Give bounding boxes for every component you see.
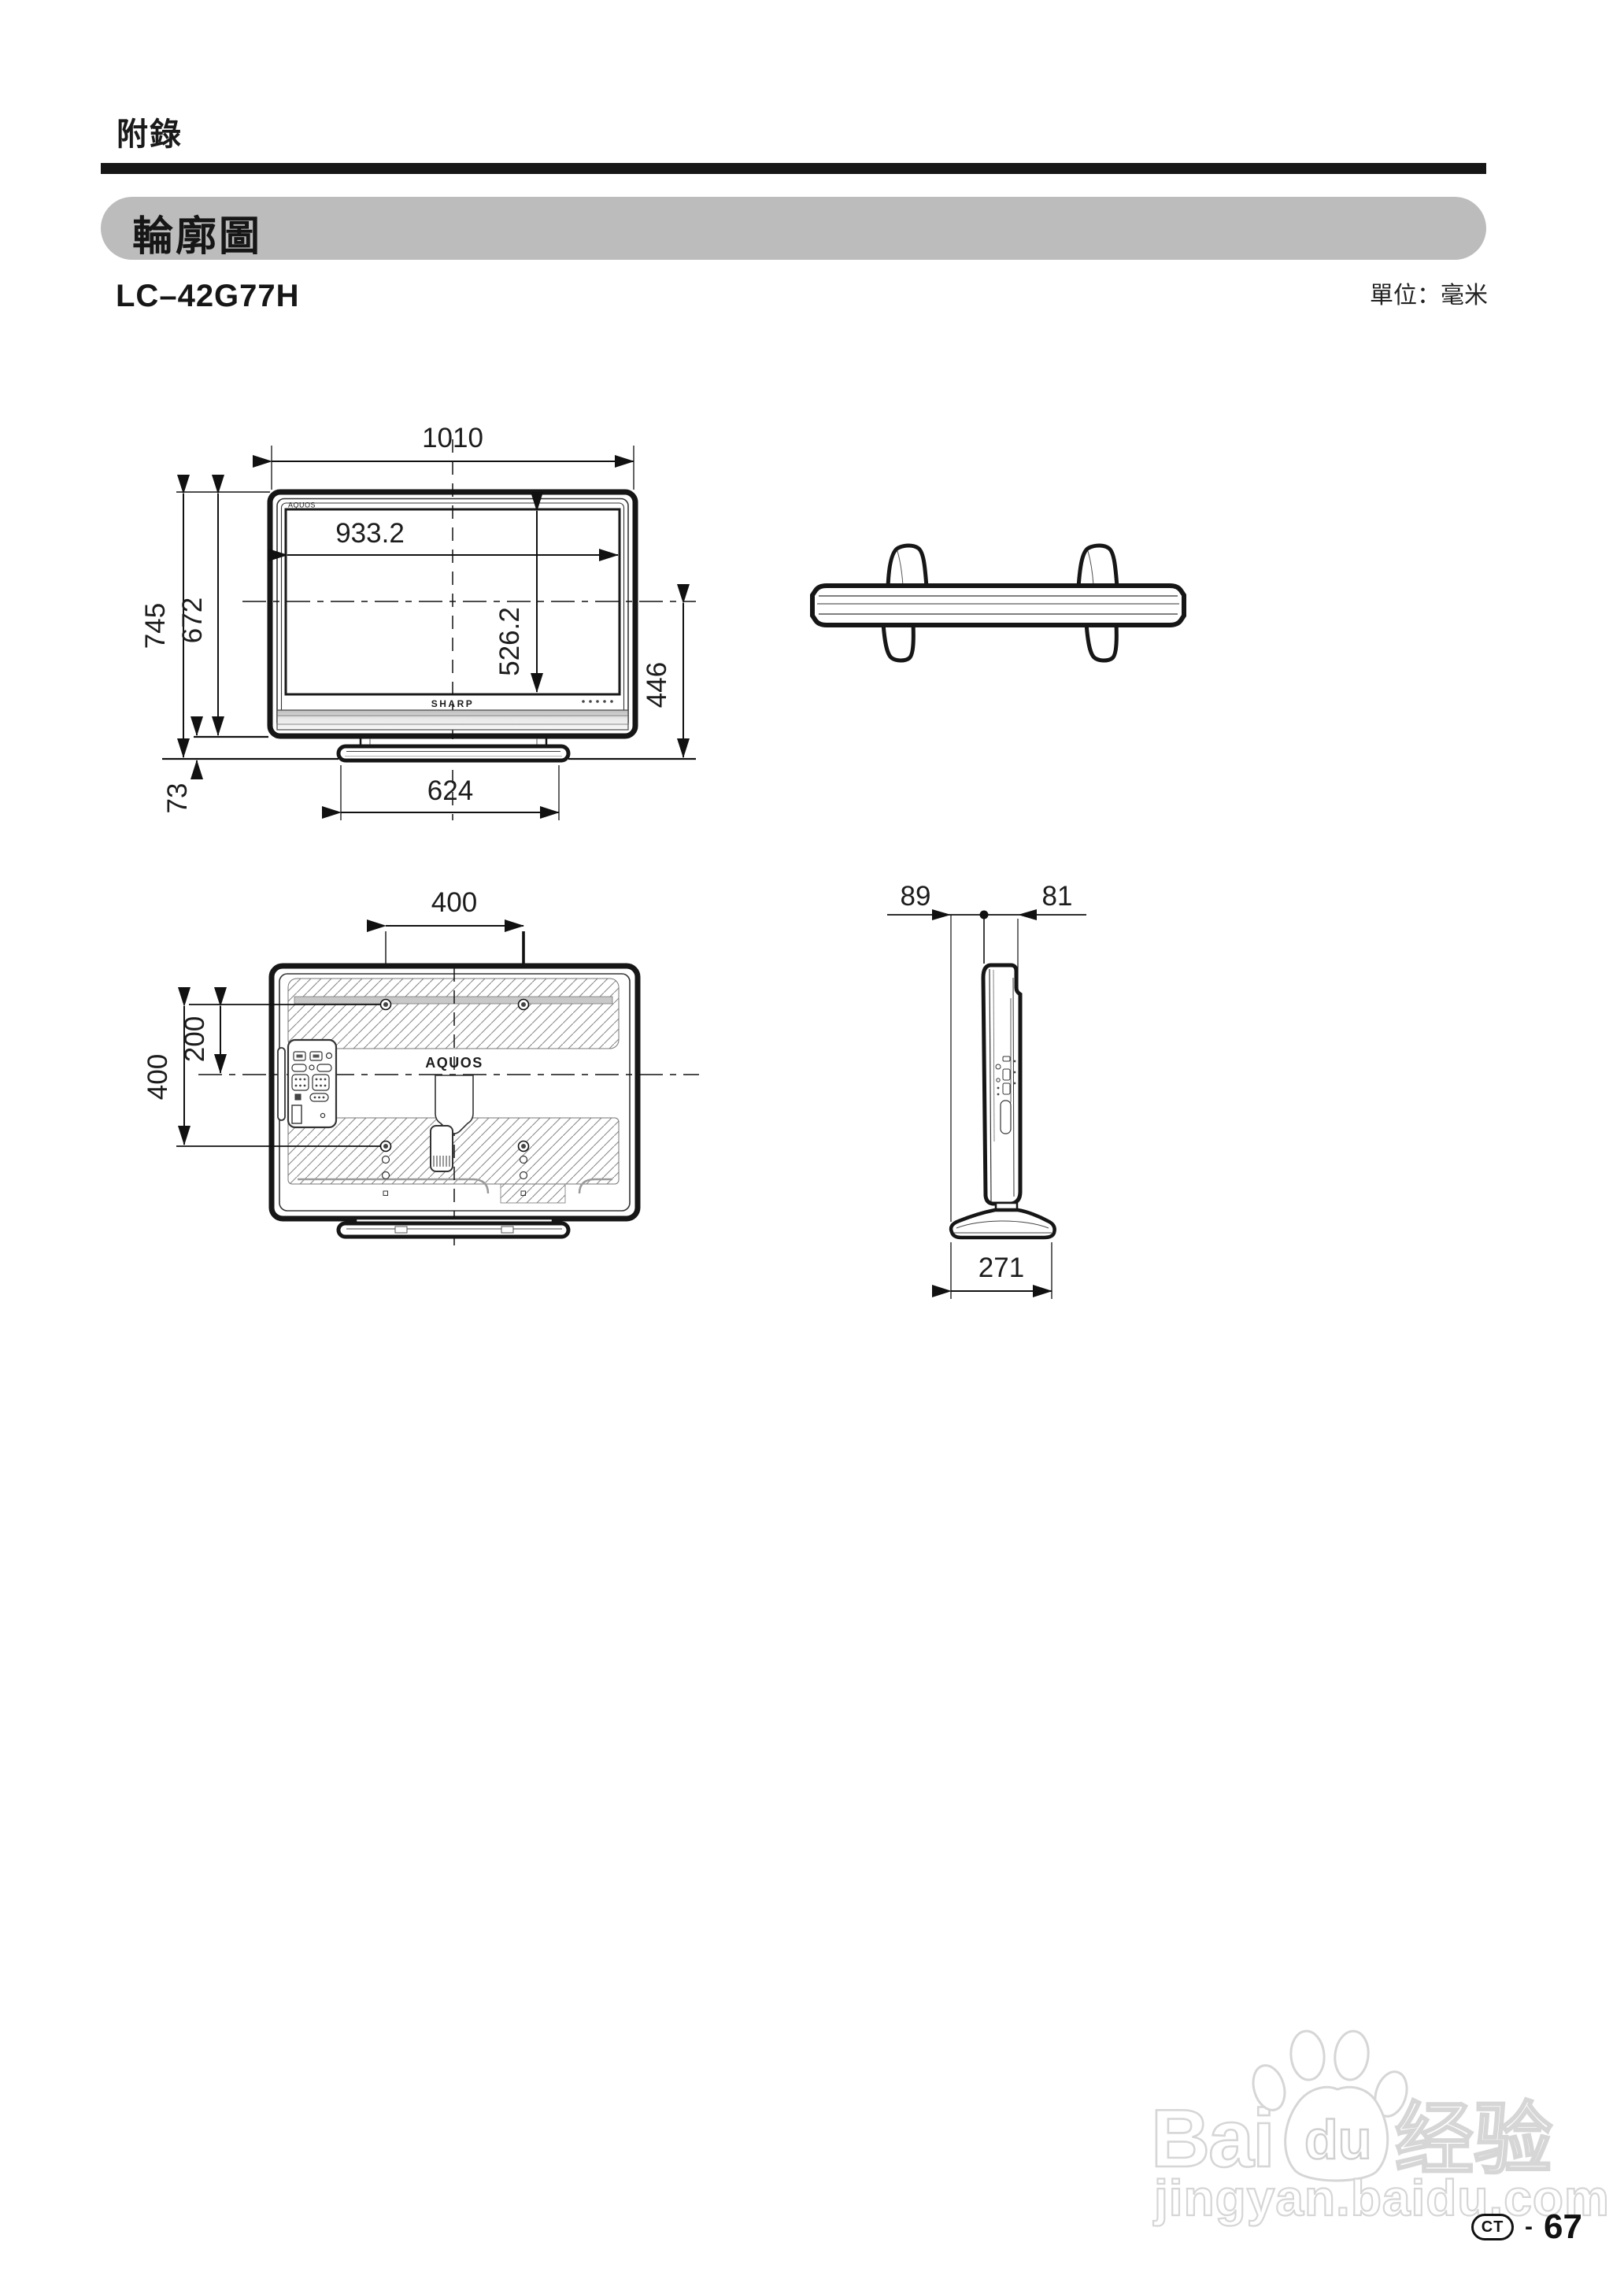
side-depth-front-label: 89 <box>901 881 931 912</box>
rear-view: 400 <box>142 887 699 1245</box>
top-view <box>812 546 1184 660</box>
rear-vent <box>431 1126 453 1171</box>
rear-mount-height-label: 400 <box>142 1054 173 1100</box>
front-brand-top: AQUOS <box>288 501 316 509</box>
side-depth-back-label: 81 <box>1042 881 1073 912</box>
watermark: Bai du 经验 jingyan.baidu.com <box>1151 2029 1610 2226</box>
footer-code: CT <box>1482 2218 1504 2237</box>
footer-code-badge: CT <box>1471 2214 1514 2240</box>
rear-brand: AQUOS <box>425 1055 483 1071</box>
manual-page: 附錄 輪廓圖 單位：毫米 LC–42G77H 1010 <box>0 0 1624 2294</box>
top-view-base <box>812 586 1184 625</box>
front-stand-height-label: 73 <box>162 783 193 814</box>
outline-drawing: 1010 AQUOS 933.2 526.2 SHARP <box>0 0 1624 2294</box>
side-stand-base <box>951 1210 1055 1238</box>
watermark-du: du <box>1304 2109 1372 2170</box>
front-screen-width-label: 933.2 <box>335 518 405 549</box>
rear-mount-width-label: 400 <box>431 887 477 918</box>
page-footer: CT - 67 <box>1291 2207 1582 2247</box>
front-height-total-label: 745 <box>140 603 171 649</box>
side-view: 89 81 <box>887 881 1086 1299</box>
front-height-body-label: 672 <box>177 598 208 643</box>
front-brand-bottom: SHARP <box>431 698 475 709</box>
side-base-depth-label: 271 <box>978 1252 1024 1283</box>
side-panel-profile <box>983 965 1020 1204</box>
front-stand <box>338 736 568 760</box>
front-screen-height-label: 526.2 <box>494 607 525 676</box>
rear-gray-bar <box>294 997 612 1004</box>
page-number: 67 <box>1544 2207 1582 2247</box>
front-speaker-band <box>277 710 628 730</box>
rear-handle <box>278 1048 285 1120</box>
rear-stand <box>338 1219 568 1237</box>
front-center-floor-label: 446 <box>642 662 672 708</box>
front-stand-width-label: 624 <box>427 775 473 806</box>
rear-hatch-top <box>288 979 619 1049</box>
front-view: 1010 AQUOS 933.2 526.2 SHARP <box>140 423 696 820</box>
footer-separator: - <box>1525 2214 1533 2240</box>
